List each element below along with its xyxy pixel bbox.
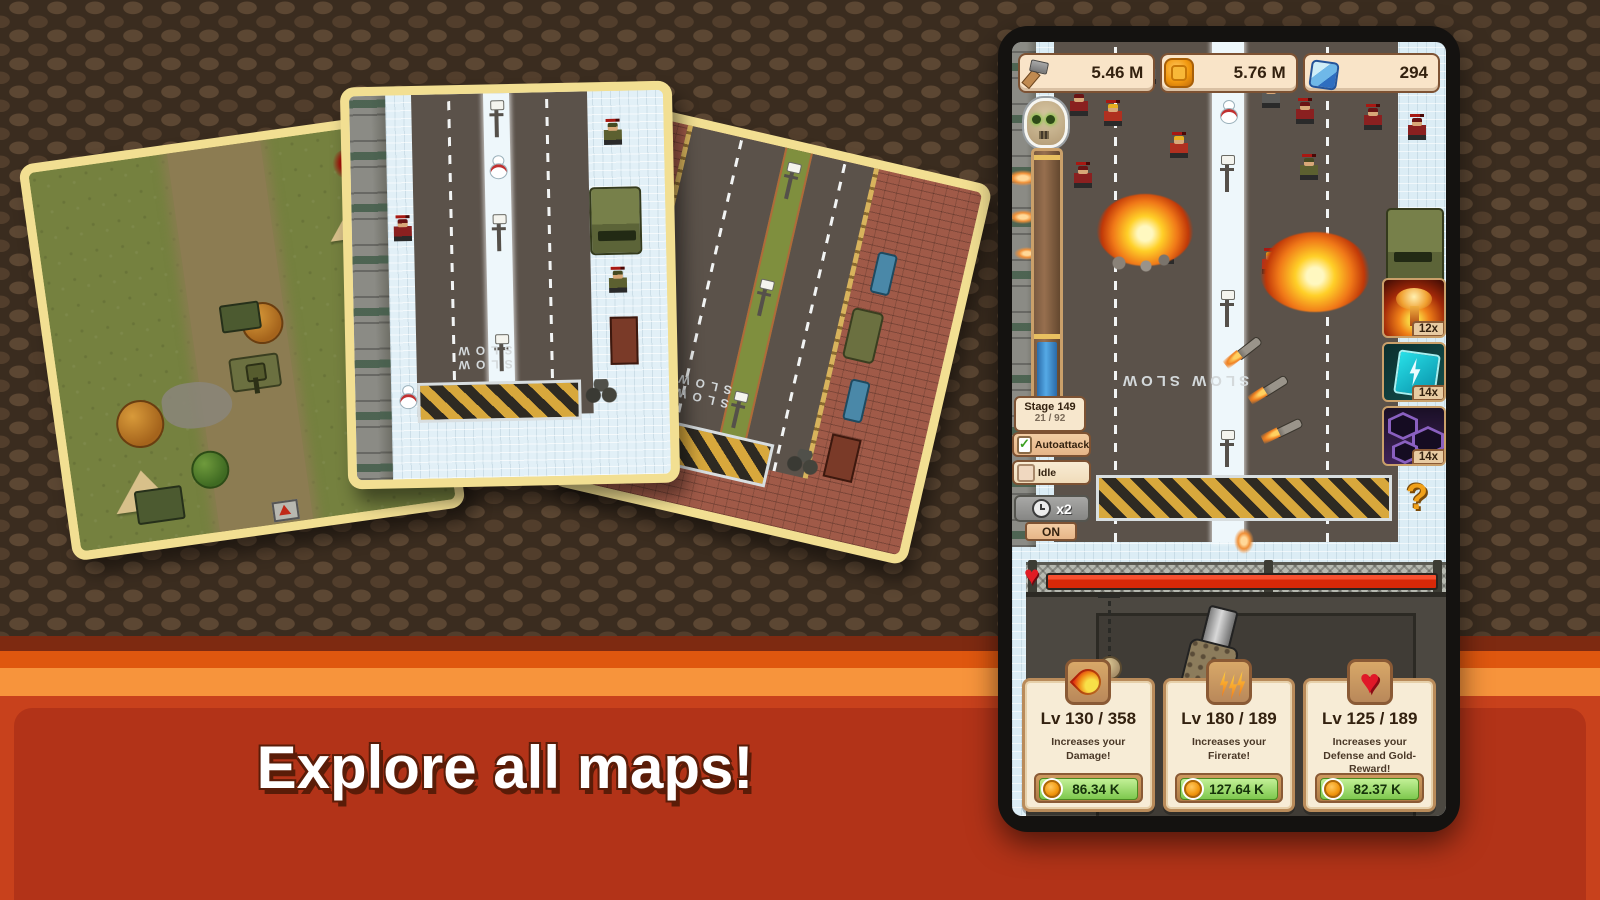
enemy-sprite bbox=[1074, 162, 1092, 188]
speed-multiplier-button[interactable]: x2 bbox=[1014, 495, 1090, 522]
headline-text: Explore all maps! bbox=[0, 733, 1010, 802]
speed-state-button[interactable]: ON bbox=[1025, 522, 1077, 541]
snowman bbox=[399, 385, 415, 407]
resource-gems: 294 bbox=[1303, 53, 1440, 93]
army-truck bbox=[589, 186, 642, 255]
coin-icon bbox=[1184, 780, 1202, 798]
stage-title: Stage 149 bbox=[1016, 401, 1084, 413]
mace-chain bbox=[1108, 598, 1111, 660]
enemy-sprite bbox=[1408, 114, 1426, 140]
help-question-button[interactable]: ? bbox=[1406, 476, 1428, 518]
damage-description: Increases your Damage! bbox=[1025, 736, 1152, 764]
damage-level: Lv 130 / 358 bbox=[1025, 709, 1152, 729]
firerate-cost: 127.64 K bbox=[1202, 782, 1278, 797]
road-marking-slow: SLOW SLOW bbox=[1104, 372, 1264, 389]
resource-hammer: 5.46 M bbox=[1018, 53, 1155, 93]
warning-sign bbox=[271, 499, 300, 522]
defense-buy-button[interactable]: 82.37 K bbox=[1315, 773, 1424, 803]
street-lamp bbox=[1225, 297, 1229, 327]
street-lamp bbox=[1225, 162, 1229, 192]
street-lamp bbox=[494, 107, 499, 137]
skill-buttons: 12x 14x 14x bbox=[1382, 278, 1446, 466]
enemy-sprite bbox=[1296, 98, 1314, 124]
parked-car bbox=[842, 307, 885, 365]
crates bbox=[823, 433, 862, 483]
vehicle-sprite bbox=[134, 485, 186, 525]
boss-progress-bar bbox=[1031, 148, 1063, 404]
defense-heart-icon: ♥ bbox=[1347, 659, 1393, 705]
checkbox-checked-icon: ✓ bbox=[1017, 436, 1032, 454]
stage-indicator: Stage 149 21 / 92 bbox=[1014, 396, 1086, 432]
checkbox-empty-icon bbox=[1017, 464, 1035, 482]
hazard-stripe bbox=[417, 380, 582, 423]
vehicle-sprite bbox=[219, 300, 263, 333]
bar-band bbox=[1034, 334, 1060, 339]
coin-icon bbox=[1043, 780, 1061, 798]
crates bbox=[610, 316, 639, 365]
game-screen: SLOW SLOW ♥ bbox=[1012, 42, 1446, 816]
enemy-sprite bbox=[1300, 154, 1318, 180]
enemy-sprite bbox=[1104, 100, 1122, 126]
hammer-icon bbox=[1022, 58, 1052, 88]
snowman bbox=[1220, 100, 1236, 122]
lightning-skill-button[interactable]: 14x bbox=[1382, 342, 1446, 402]
firerate-buy-button[interactable]: 127.64 K bbox=[1175, 773, 1284, 803]
enemy-sprite bbox=[604, 119, 623, 145]
autoattack-label: Autoattack bbox=[1035, 439, 1089, 451]
idle-label: Idle bbox=[1038, 467, 1056, 479]
hex-count: 14x bbox=[1412, 449, 1445, 465]
enemy-sprite bbox=[609, 267, 628, 293]
enemy-sprite bbox=[394, 215, 413, 241]
tank-sprite bbox=[228, 352, 282, 393]
road-marking-slow: SLOW SLOW bbox=[418, 342, 547, 373]
resource-medals: 5.76 M bbox=[1160, 53, 1297, 93]
tree-orange bbox=[113, 397, 167, 451]
medal-icon bbox=[1164, 58, 1194, 88]
damage-upgrade-card[interactable]: Lv 130 / 358 Increases your Damage! 86.3… bbox=[1022, 678, 1155, 812]
hazard-stripe bbox=[1096, 475, 1392, 521]
speed-multiplier-label: x2 bbox=[1056, 501, 1072, 517]
base-health-heart-icon: ♥ bbox=[1024, 560, 1039, 591]
hex-skill-button[interactable]: 14x bbox=[1382, 406, 1446, 466]
phone-frame: SLOW SLOW ♥ bbox=[998, 26, 1460, 832]
enemy-sprite bbox=[1170, 132, 1188, 158]
idle-toggle[interactable]: Idle bbox=[1012, 460, 1091, 485]
upgrade-cards: Lv 130 / 358 Increases your Damage! 86.3… bbox=[1022, 678, 1436, 812]
firerate-description: Increases your Firerate! bbox=[1166, 736, 1293, 764]
coin-icon bbox=[1324, 780, 1342, 798]
lightning-count: 14x bbox=[1412, 385, 1445, 401]
hammer-value: 5.46 M bbox=[1052, 63, 1153, 83]
defense-level: Lv 125 / 189 bbox=[1306, 709, 1433, 729]
damage-buy-button[interactable]: 86.34 K bbox=[1034, 773, 1143, 803]
stage-progress: 21 / 92 bbox=[1016, 413, 1084, 424]
bar-fill bbox=[1037, 342, 1057, 398]
street-lamp bbox=[497, 221, 502, 251]
medal-value: 5.76 M bbox=[1194, 63, 1295, 83]
explosion bbox=[1260, 232, 1370, 312]
firerate-level: Lv 180 / 189 bbox=[1166, 709, 1293, 729]
enemy-sprite bbox=[1364, 104, 1382, 130]
parked-car bbox=[869, 251, 898, 296]
bar-band bbox=[1034, 155, 1060, 160]
damage-flame-icon bbox=[1065, 659, 1111, 705]
map-card-winter-city: SLOW SLOW bbox=[340, 81, 680, 490]
diamond-icon bbox=[1308, 59, 1340, 91]
damage-cost: 86.34 K bbox=[1061, 782, 1137, 797]
autoattack-toggle[interactable]: ✓ Autoattack bbox=[1012, 432, 1091, 457]
snowman bbox=[489, 155, 505, 177]
army-truck bbox=[1386, 208, 1444, 288]
resource-bar: 5.46 M 5.76 M 294 bbox=[1018, 53, 1440, 93]
base-health-bar bbox=[1046, 573, 1438, 590]
defense-cost: 82.37 K bbox=[1342, 782, 1418, 797]
barrels bbox=[585, 379, 619, 404]
falling-shell bbox=[1234, 528, 1254, 554]
nuke-skill-button[interactable]: 12x bbox=[1382, 278, 1446, 338]
boss-skull-icon bbox=[1024, 98, 1068, 148]
promo-screenshot: Explore all maps! bbox=[0, 0, 1600, 900]
map-winter-art: SLOW SLOW bbox=[349, 90, 671, 480]
buildings-strip bbox=[349, 96, 393, 481]
firerate-icon bbox=[1206, 659, 1252, 705]
firerate-upgrade-card[interactable]: Lv 180 / 189 Increases your Firerate! 12… bbox=[1163, 678, 1296, 812]
defense-upgrade-card[interactable]: ♥ Lv 125 / 189 Increases your Defense an… bbox=[1303, 678, 1436, 812]
enemy-sprite bbox=[1070, 90, 1088, 116]
parked-car bbox=[842, 378, 871, 423]
street-lamp bbox=[1225, 437, 1229, 467]
defense-description: Increases your Defense and Gold-Reward! bbox=[1306, 736, 1433, 777]
clock-icon bbox=[1032, 499, 1051, 518]
smoke bbox=[1092, 242, 1182, 272]
gem-value: 294 bbox=[1337, 63, 1438, 83]
dirt-path bbox=[167, 141, 314, 532]
nuke-count: 12x bbox=[1412, 321, 1445, 337]
